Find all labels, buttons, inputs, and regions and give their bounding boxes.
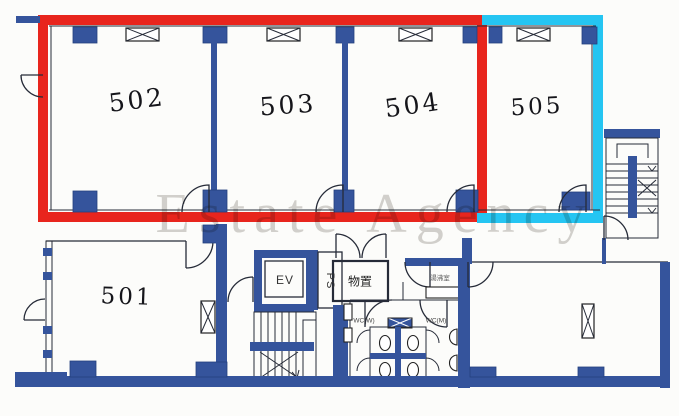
kitchenette-label: 湯沸室 bbox=[430, 272, 450, 282]
urinal-icon bbox=[450, 355, 458, 371]
elevator-box bbox=[228, 250, 314, 312]
floor-plan: Estate Agency 501 502 503 504 505 EV PS … bbox=[0, 0, 679, 416]
watermark: Estate Agency bbox=[156, 182, 595, 246]
room-label-501: 501 bbox=[100, 283, 154, 311]
toilet-icon bbox=[408, 336, 419, 351]
room-label-503: 503 bbox=[259, 89, 318, 122]
elevator-label: EV bbox=[276, 273, 294, 287]
door-arc-bottom-right bbox=[468, 262, 493, 287]
window-icon bbox=[582, 304, 594, 338]
toilet-icon bbox=[380, 336, 391, 351]
urinal-icon bbox=[450, 329, 458, 345]
stairs-internal bbox=[250, 312, 316, 380]
window-icon bbox=[517, 28, 550, 41]
door-arc-lobby bbox=[228, 277, 253, 302]
stall-door-arc bbox=[426, 330, 439, 343]
storage-label: 物置 bbox=[348, 273, 372, 290]
room-label-505: 505 bbox=[510, 93, 564, 122]
room-bottom-right bbox=[468, 262, 670, 388]
wall-stub bbox=[16, 16, 40, 23]
window-icon bbox=[399, 28, 432, 41]
stall-door-arc bbox=[426, 358, 439, 371]
stall-door-arc bbox=[357, 358, 370, 371]
stall-door-arc bbox=[357, 330, 370, 343]
door-arc-stairs bbox=[604, 216, 628, 240]
stairs-external bbox=[602, 129, 660, 264]
toilet-icon bbox=[408, 363, 419, 378]
wc-block bbox=[333, 300, 462, 385]
door-arc-501-left bbox=[24, 299, 45, 320]
toilet-icon bbox=[380, 363, 391, 378]
wc-right-label: WC(M) bbox=[426, 318, 447, 325]
window-icon bbox=[267, 28, 300, 41]
pipe-shaft-label: PS bbox=[324, 273, 336, 290]
wc-left-label: WC(W) bbox=[353, 318, 374, 325]
sink-counter bbox=[426, 287, 460, 298]
window-icon bbox=[126, 28, 159, 41]
window-icon bbox=[201, 301, 215, 333]
